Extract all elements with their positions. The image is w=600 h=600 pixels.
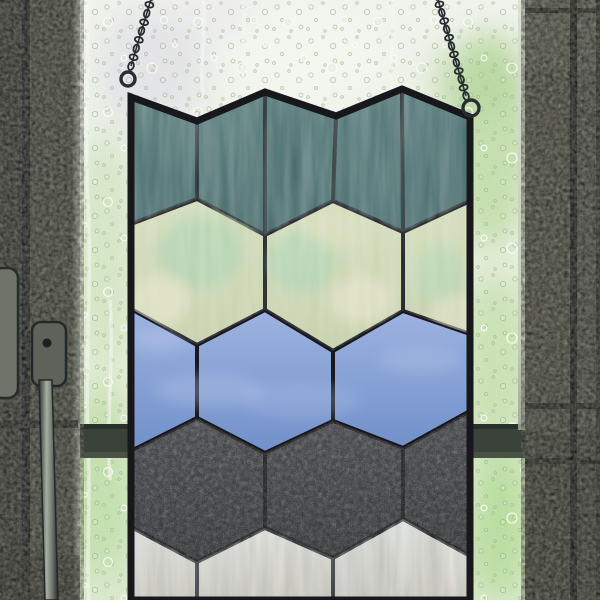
screw-hole — [43, 339, 52, 348]
window-scene — [0, 0, 600, 600]
handle-base — [32, 322, 66, 386]
left-frame — [0, 0, 80, 600]
stained-glass-photo — [0, 0, 600, 600]
frame-edge-highlight — [518, 0, 526, 430]
hinge-plate — [0, 268, 18, 398]
right-frame — [518, 0, 600, 600]
